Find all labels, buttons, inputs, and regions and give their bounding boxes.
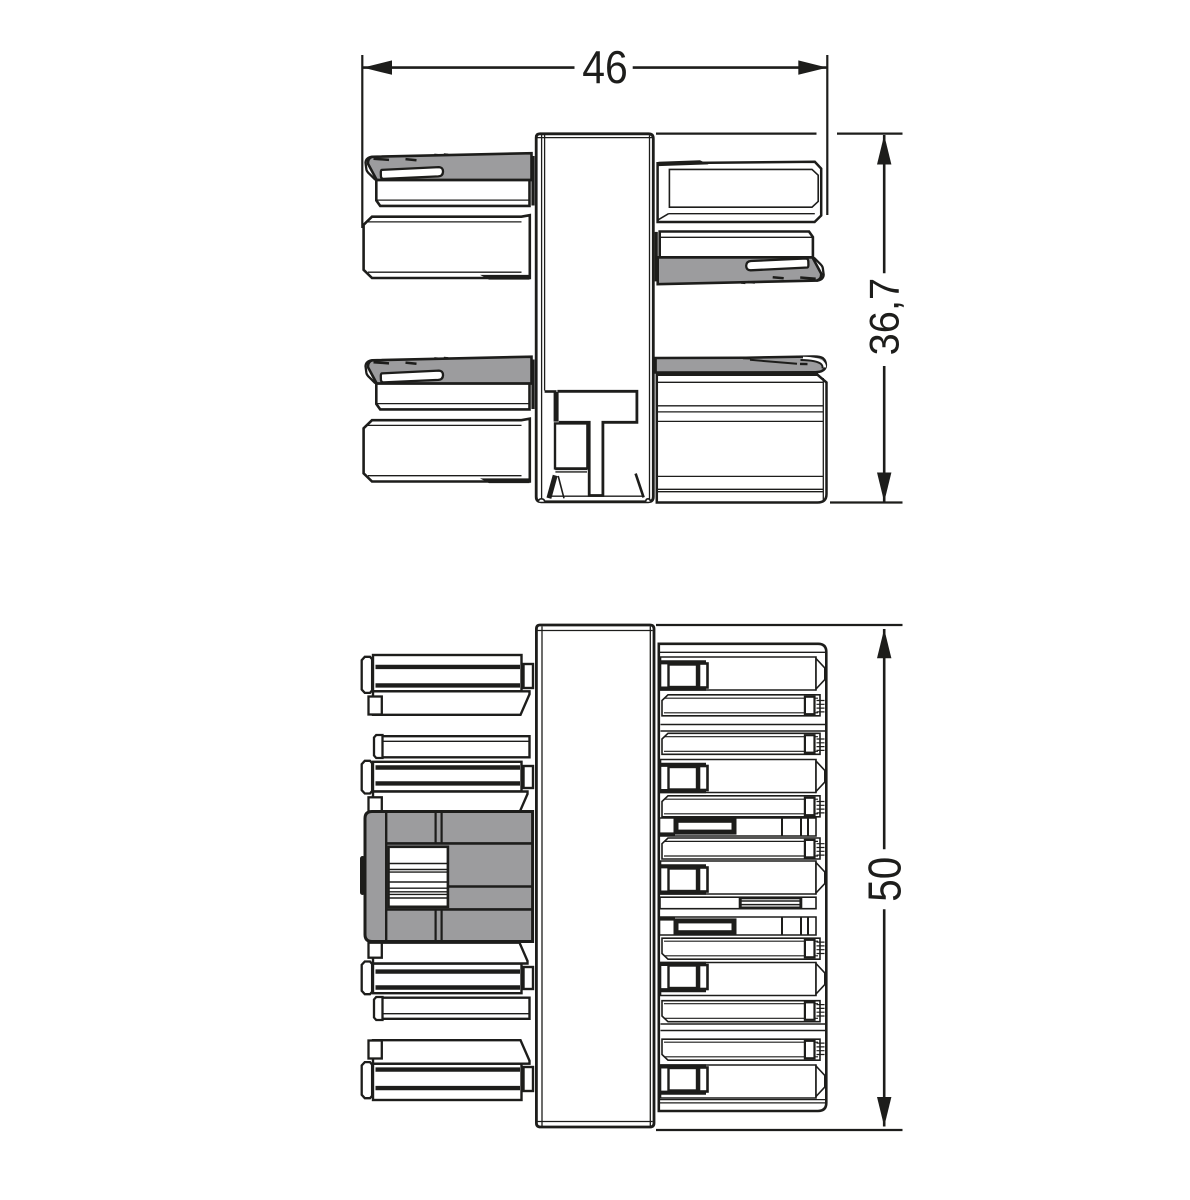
svg-text:36,7: 36,7 [861,278,908,356]
svg-text:46: 46 [582,41,628,93]
svg-text:50: 50 [859,857,911,902]
